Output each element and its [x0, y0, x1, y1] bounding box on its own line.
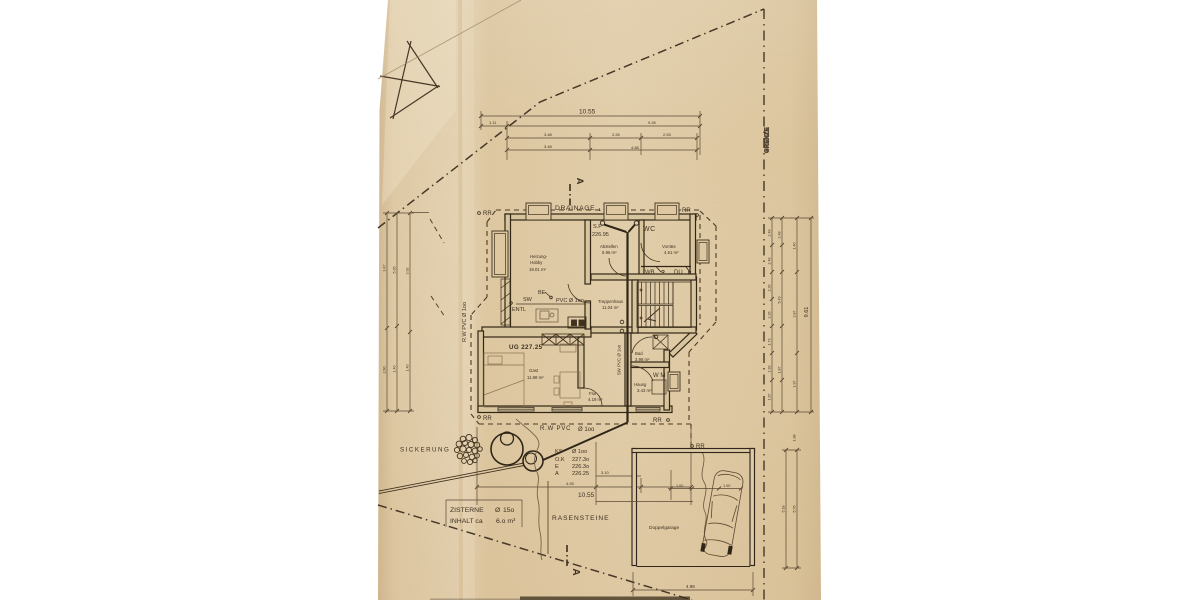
svg-text:ZISTERNE: ZISTERNE [450, 507, 484, 514]
svg-text:3.98 m²: 3.98 m² [635, 357, 650, 362]
svg-text:RASENSTEINE: RASENSTEINE [552, 515, 610, 522]
svg-text:19.01 m²: 19.01 m² [529, 267, 547, 272]
svg-text:9.61: 9.61 [804, 307, 810, 318]
svg-text:11.98 m²: 11.98 m² [527, 375, 544, 380]
svg-text:4.61 m²: 4.61 m² [664, 250, 679, 255]
svg-text:5.49: 5.49 [778, 297, 782, 304]
svg-text:SICKERUNG: SICKERUNG [400, 447, 450, 454]
svg-text:A: A [555, 471, 559, 477]
svg-text:RR: RR [483, 416, 492, 422]
svg-text:10.55: 10.55 [578, 492, 595, 499]
svg-text:2.87: 2.87 [793, 311, 797, 318]
svg-text:Vorräte: Vorräte [662, 244, 676, 249]
svg-text:2.48: 2.48 [768, 230, 772, 237]
svg-text:5.76: 5.76 [793, 506, 797, 513]
svg-text:5.35: 5.35 [393, 267, 397, 274]
svg-text:WB: WB [645, 270, 655, 276]
svg-text:3.92: 3.92 [406, 268, 410, 275]
svg-text:Hobby: Hobby [530, 260, 543, 265]
svg-text:Treppenhaus: Treppenhaus [598, 299, 623, 304]
svg-text:15o: 15o [503, 507, 515, 514]
svg-text:1.40: 1.40 [406, 365, 410, 372]
svg-text:Doppelgarage: Doppelgarage [649, 525, 679, 531]
svg-text:6.o m³: 6.o m³ [496, 518, 516, 525]
svg-text:Flur: Flur [589, 391, 597, 396]
svg-text:2.53: 2.53 [663, 132, 672, 137]
svg-text:Bad: Bad [635, 351, 643, 356]
svg-text:UG 227.25: UG 227.25 [509, 344, 543, 351]
svg-text:1.93: 1.93 [768, 366, 772, 373]
svg-text:Ø 1oo: Ø 1oo [572, 449, 587, 455]
svg-text:3.47: 3.47 [383, 265, 387, 272]
svg-text:KS: KS [555, 449, 563, 455]
svg-text:226.95: 226.95 [592, 232, 609, 238]
svg-text:3.48: 3.48 [544, 144, 553, 149]
svg-text:R.W PVC: R.W PVC [540, 426, 571, 432]
svg-text:1.00: 1.00 [676, 484, 683, 488]
svg-text:Ø: Ø [495, 507, 501, 514]
svg-text:4.19 m²: 4.19 m² [588, 397, 603, 402]
svg-text:2.26: 2.26 [768, 312, 772, 319]
svg-text:RR: RR [483, 211, 492, 217]
svg-text:SW PVC Ø 1oo: SW PVC Ø 1oo [617, 344, 622, 375]
svg-text:1.40: 1.40 [393, 366, 397, 373]
svg-text:PVC Ø 1oo: PVC Ø 1oo [556, 298, 584, 304]
svg-text:1.11: 1.11 [489, 120, 497, 125]
svg-text:11.04 m²: 11.04 m² [602, 305, 619, 310]
svg-text:4.88: 4.88 [631, 145, 640, 150]
svg-text:3.10: 3.10 [601, 470, 610, 475]
svg-text:10.55: 10.55 [579, 109, 596, 116]
svg-text:Hausg: Hausg [634, 382, 647, 387]
svg-text:RR: RR [653, 418, 662, 424]
svg-text:DU: DU [674, 270, 683, 276]
svg-text:Gast: Gast [529, 368, 539, 373]
svg-text:A: A [574, 178, 585, 185]
svg-text:S.P: S.P [593, 224, 602, 230]
svg-text:INHALT ca: INHALT ca [450, 518, 483, 525]
svg-text:4.93: 4.93 [566, 481, 575, 486]
svg-text:4.98: 4.98 [686, 584, 695, 589]
svg-text:W M: W M [653, 373, 665, 379]
svg-text:2.26: 2.26 [768, 285, 772, 292]
svg-text:DRAINAGE: DRAINAGE [555, 205, 595, 212]
svg-text:1.97: 1.97 [768, 394, 772, 401]
svg-text:2.48: 2.48 [768, 258, 772, 265]
svg-text:1.98: 1.98 [793, 435, 797, 442]
svg-text:2.26: 2.26 [612, 132, 621, 137]
svg-text:BE: BE [538, 290, 546, 296]
svg-text:1.40: 1.40 [793, 243, 797, 250]
svg-text:2.60: 2.60 [383, 367, 387, 374]
svg-text:A: A [570, 568, 581, 575]
svg-text:Ø 1oo: Ø 1oo [578, 427, 595, 433]
svg-text:9.26: 9.26 [648, 120, 657, 125]
svg-text:2.48: 2.48 [778, 232, 782, 239]
svg-text:3.43 m²: 3.43 m² [637, 388, 652, 393]
svg-text:-1: -1 [597, 207, 601, 212]
svg-text:Heizung-: Heizung- [530, 254, 548, 259]
svg-text:Abstellen: Abstellen [600, 244, 618, 249]
svg-text:WC: WC [643, 226, 656, 233]
svg-text:1.87: 1.87 [778, 367, 782, 374]
svg-text:E: E [555, 464, 559, 470]
svg-text:1.73: 1.73 [768, 339, 772, 346]
svg-text:226.25: 226.25 [572, 471, 589, 477]
svg-text:O.K: O.K [555, 457, 565, 463]
svg-text:5.96 m²: 5.96 m² [602, 250, 617, 255]
svg-text:RR: RR [682, 208, 691, 214]
svg-text:1.00: 1.00 [723, 484, 730, 488]
svg-text:226.3o: 226.3o [572, 464, 589, 470]
svg-text:GRENZE: GRENZE [765, 127, 771, 153]
svg-text:3.48: 3.48 [544, 132, 553, 137]
svg-text:SW: SW [523, 297, 533, 303]
svg-text:5.18: 5.18 [782, 506, 786, 513]
svg-text:R.W PVC Ø 1oo: R.W PVC Ø 1oo [462, 302, 468, 342]
svg-text:227.3o: 227.3o [572, 457, 589, 463]
svg-text:1.97: 1.97 [793, 381, 797, 388]
svg-text:ENTL: ENTL [512, 307, 526, 313]
